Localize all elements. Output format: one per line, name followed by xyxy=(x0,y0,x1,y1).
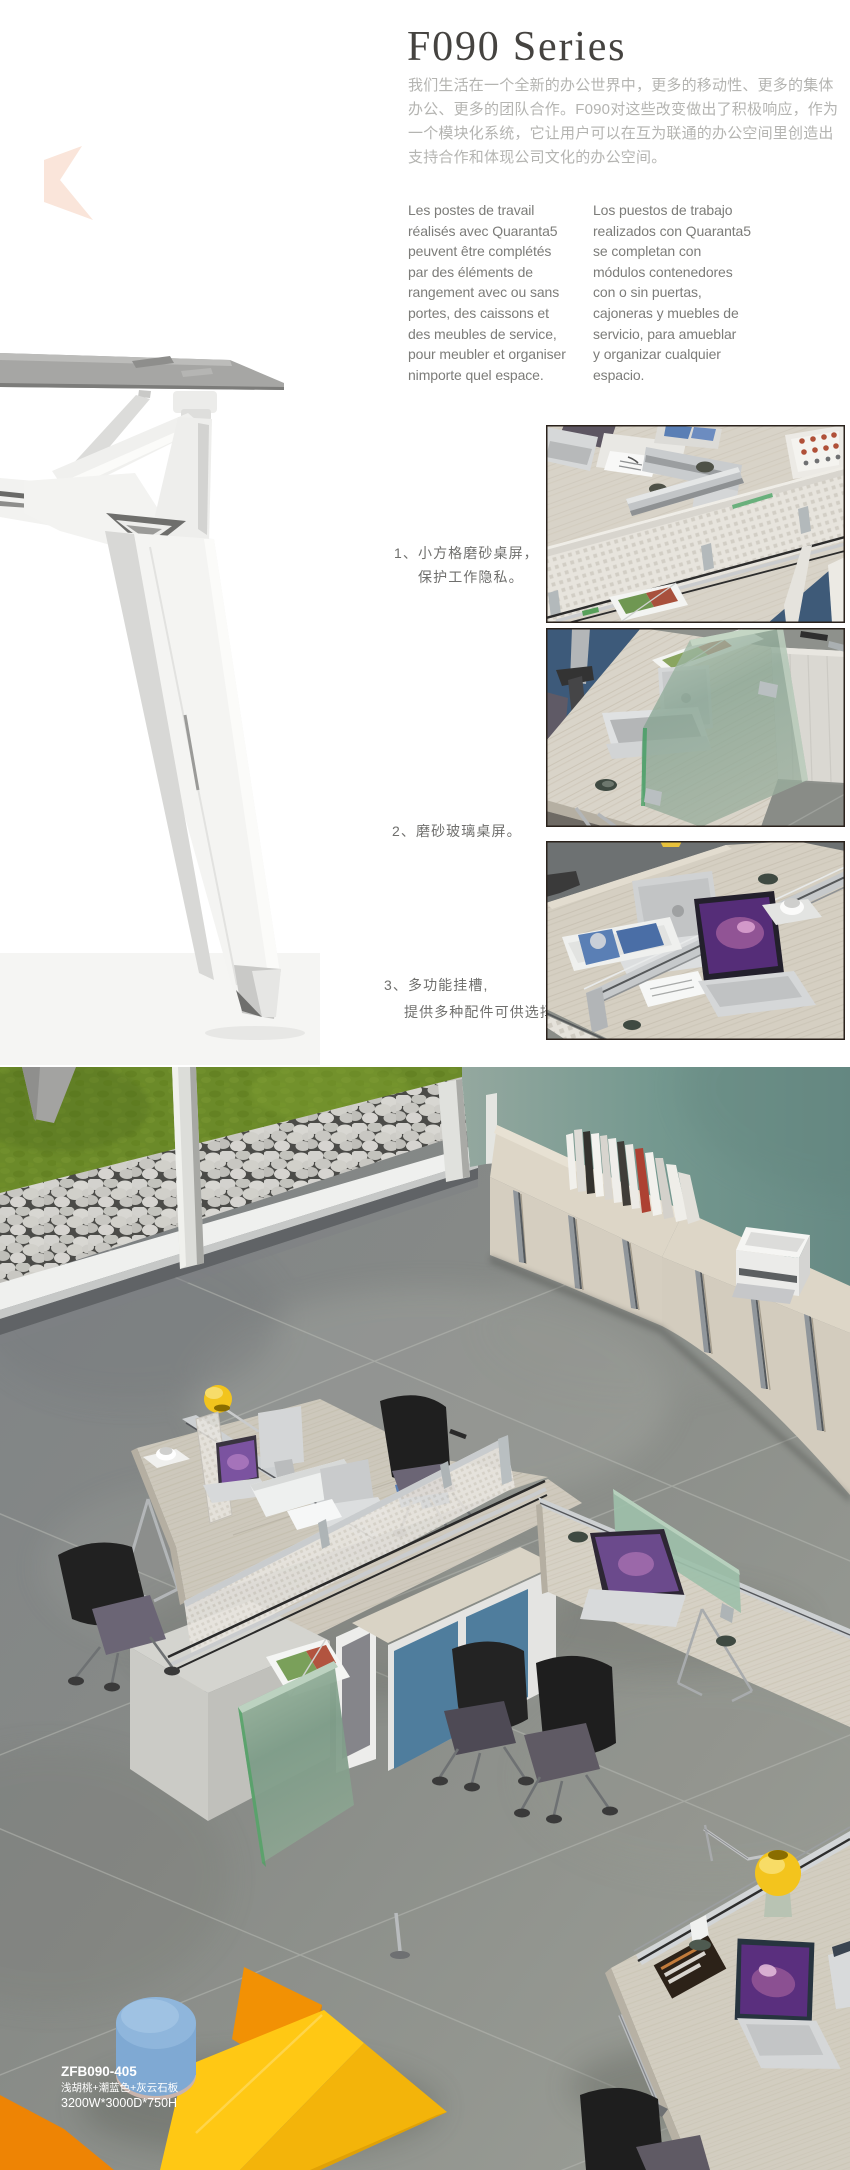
svg-text:3200W*3000D*750H: 3200W*3000D*750H xyxy=(61,2096,177,2110)
svg-text:浅胡桃+潮蓝色+灰云石板: 浅胡桃+潮蓝色+灰云石板 xyxy=(61,2081,179,2094)
svg-text:ZFB090-405: ZFB090-405 xyxy=(61,2064,137,2079)
